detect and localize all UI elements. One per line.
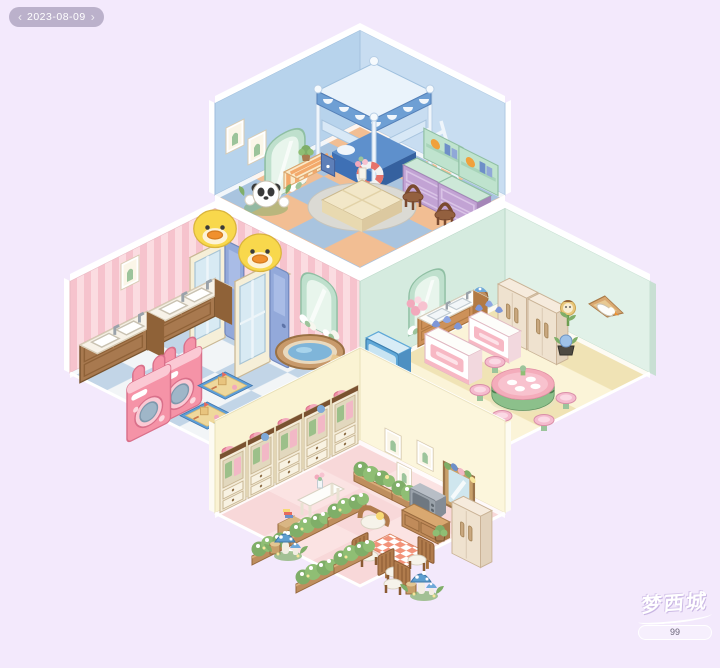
wall-end-cap xyxy=(505,421,511,513)
wardrobe[interactable] xyxy=(220,442,246,513)
wardrobe[interactable] xyxy=(332,386,358,457)
next-day-icon[interactable]: › xyxy=(91,11,95,23)
wall-end-cap xyxy=(64,278,70,373)
game-watermark: 梦西城 99 xyxy=(635,587,715,640)
prev-day-icon[interactable]: ‹ xyxy=(18,11,22,23)
flower-vase xyxy=(359,168,366,179)
game-screen: ‹ 2023-08-09 › 梦西城 99 xyxy=(0,0,720,668)
wardrobe[interactable] xyxy=(304,400,330,471)
wall-end-cap xyxy=(650,281,656,376)
wardrobe[interactable] xyxy=(276,414,302,485)
wall-end-cap xyxy=(209,100,215,195)
player-id-badge: 99 xyxy=(638,625,712,640)
blue-bow xyxy=(261,433,269,441)
date-badge[interactable]: ‹ 2023-08-09 › xyxy=(9,7,104,27)
blue-bow xyxy=(317,405,325,413)
wardrobe[interactable] xyxy=(248,428,274,499)
isometric-dollhouse xyxy=(0,0,720,668)
date-label: 2023-08-09 xyxy=(27,11,86,23)
wall-end-cap xyxy=(505,100,511,195)
wall-end-cap xyxy=(209,421,215,513)
